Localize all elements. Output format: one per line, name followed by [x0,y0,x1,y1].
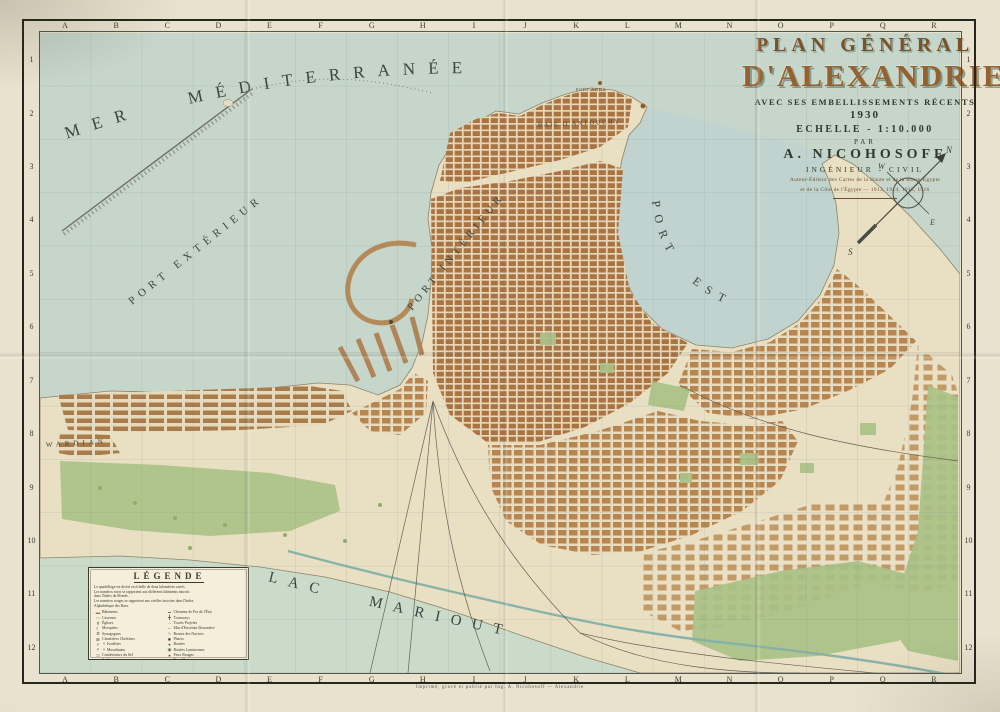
map-inner-frame [39,31,962,674]
printer-imprint: Imprimé, gravé et publié par Ing. A. Nic… [0,685,1000,690]
map-sheet: ABCDEFGHIJKLMNOPQR ABCDEFGHIJKLMNOPQR 12… [0,0,1000,712]
